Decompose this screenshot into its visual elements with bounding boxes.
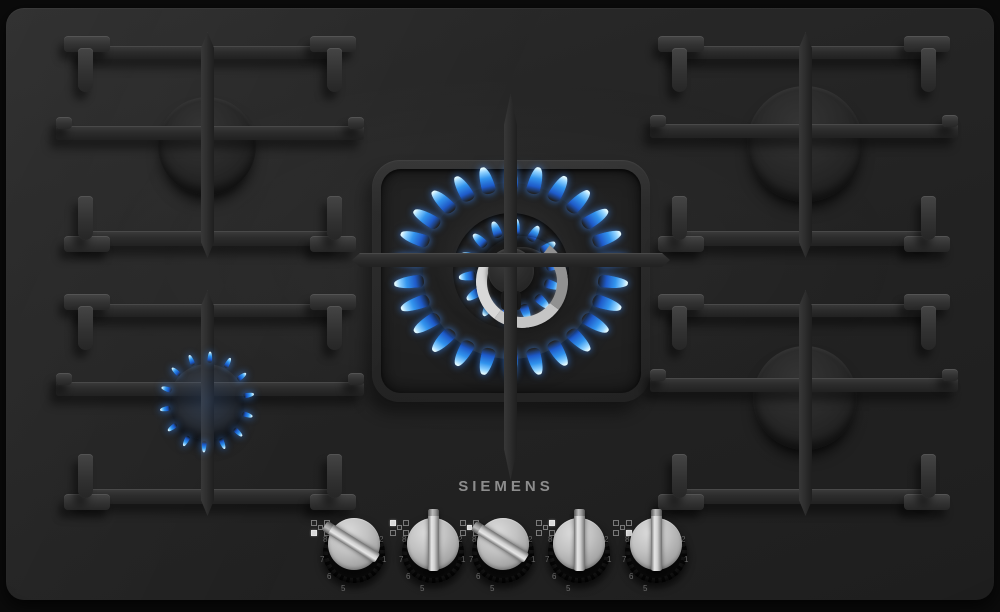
grate-foot-stem (78, 454, 93, 498)
grate-foot-stem (327, 306, 342, 350)
burner-position-cell-bl (613, 530, 619, 536)
burner-position-cell-tr (626, 520, 632, 526)
center-grate-vertical-bar (504, 94, 517, 480)
dial-number: 8 (402, 536, 406, 544)
burner-position-cell-c (543, 525, 548, 530)
grate-mid-end-left (56, 373, 72, 385)
dial-number: 1 (382, 556, 386, 564)
grate-vertical-bar (799, 290, 812, 516)
grate-foot-stem (327, 454, 342, 498)
hob-glass-surface: SIEMENS 876521876521876521876521876521 (6, 8, 994, 600)
grate-foot-stem (921, 454, 936, 498)
grate-foot-stem (327, 48, 342, 92)
dial-number: 7 (545, 556, 549, 564)
grate-mid-end-right (942, 115, 958, 127)
grate-mid-end-right (348, 373, 364, 385)
grate-foot-stem (78, 306, 93, 350)
knob-handle[interactable] (428, 509, 439, 571)
product-photo-gas-hob: SIEMENS 876521876521876521876521876521 (0, 0, 1000, 612)
knob-handle[interactable] (574, 509, 585, 571)
dial-number: 7 (469, 556, 473, 564)
gas-flame (223, 357, 232, 369)
dial-number: 6 (552, 573, 556, 581)
burner-position-cell-bl (311, 530, 317, 536)
grate-foot-stem (327, 196, 342, 240)
grate-back-left (64, 38, 356, 250)
dial-number: 7 (320, 556, 324, 564)
burner-position-cell-tl (390, 520, 396, 526)
grate-mid-end-right (348, 117, 364, 129)
burner-position-cell-c (397, 525, 402, 530)
grate-front-left (64, 296, 356, 508)
gas-flame (187, 354, 195, 366)
grate-mid-end-right (942, 369, 958, 381)
grate-back-right (658, 38, 950, 250)
burner-position-cell-tl (613, 520, 619, 526)
dial-number: 8 (472, 536, 476, 544)
burner-position-icon (613, 520, 633, 536)
grate-foot-stem (672, 196, 687, 240)
dial-number: 7 (399, 556, 403, 564)
burner-position-cell-bl (390, 530, 396, 536)
dial-number: 5 (341, 585, 345, 593)
grate-foot-stem (672, 48, 687, 92)
burner-position-cell-tr (403, 520, 409, 526)
dial-number: 6 (629, 573, 633, 581)
grate-foot-stem (672, 454, 687, 498)
dial-number: 1 (607, 556, 611, 564)
center-grate-horizontal-bar (352, 253, 670, 267)
dial-number: 8 (323, 536, 327, 544)
burner-position-cell-tr (549, 520, 555, 526)
dial-number: 7 (622, 556, 626, 564)
dial-number: 5 (420, 585, 424, 593)
grate-mid-end-left (650, 369, 666, 381)
dial-number: 6 (476, 573, 480, 581)
dial-number: 5 (643, 585, 647, 593)
grate-foot-stem (921, 196, 936, 240)
grate-front-right (658, 296, 950, 508)
dial-number: 5 (490, 585, 494, 593)
burner-position-cell-tl (311, 520, 317, 526)
knob-handle[interactable] (651, 509, 662, 571)
burner-position-cell-tl (536, 520, 542, 526)
dial-number: 6 (327, 573, 331, 581)
grate-foot-stem (921, 48, 936, 92)
gas-flame (207, 351, 212, 362)
grate-vertical-bar (201, 32, 214, 258)
burner-position-cell-bl (536, 530, 542, 536)
burner-position-icon (536, 520, 556, 536)
dial-number: 8 (548, 536, 552, 544)
dial-number: 8 (625, 536, 629, 544)
burner-position-cell-bl (460, 530, 466, 536)
dial-number: 1 (461, 556, 465, 564)
grate-foot-stem (78, 48, 93, 92)
gas-flame (236, 371, 247, 381)
grate-vertical-bar (201, 290, 214, 516)
burner-position-cell-tl (460, 520, 466, 526)
grate-mid-end-left (650, 115, 666, 127)
burner-position-cell-c (620, 525, 625, 530)
burner-position-icon (390, 520, 410, 536)
grate-mid-end-left (56, 117, 72, 129)
grate-foot-stem (672, 306, 687, 350)
gas-flame (243, 392, 254, 399)
dial-number: 1 (684, 556, 688, 564)
grate-foot-stem (921, 306, 936, 350)
grate-vertical-bar (799, 32, 812, 258)
dial-number: 5 (566, 585, 570, 593)
dial-number: 6 (406, 573, 410, 581)
dial-number: 1 (531, 556, 535, 564)
grate-foot-stem (78, 196, 93, 240)
siemens-logo: SIEMENS (406, 478, 606, 495)
